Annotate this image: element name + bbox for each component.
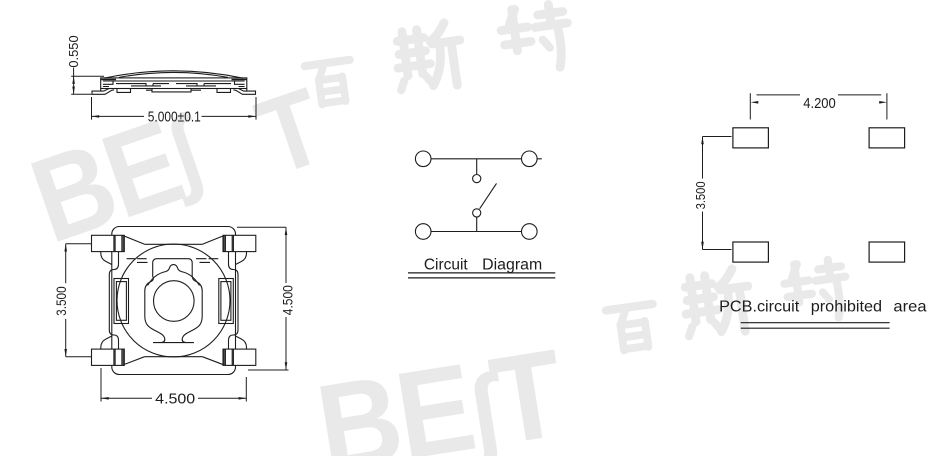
svg-text:0.550: 0.550 xyxy=(66,35,81,67)
svg-text:3.500: 3.500 xyxy=(54,286,69,316)
svg-text:3.500: 3.500 xyxy=(693,181,708,209)
svg-text:Diagram: Diagram xyxy=(482,256,542,273)
svg-text:area: area xyxy=(893,299,926,316)
svg-text:prohibited: prohibited xyxy=(811,299,882,316)
svg-text:Circuit: Circuit xyxy=(424,256,469,273)
svg-text:4.200: 4.200 xyxy=(803,96,836,112)
svg-text:4.500: 4.500 xyxy=(281,285,296,315)
svg-text:PCB.circuit: PCB.circuit xyxy=(719,299,800,316)
svg-text:5.000±0.1: 5.000±0.1 xyxy=(148,110,201,126)
svg-text:4.500: 4.500 xyxy=(155,391,195,407)
